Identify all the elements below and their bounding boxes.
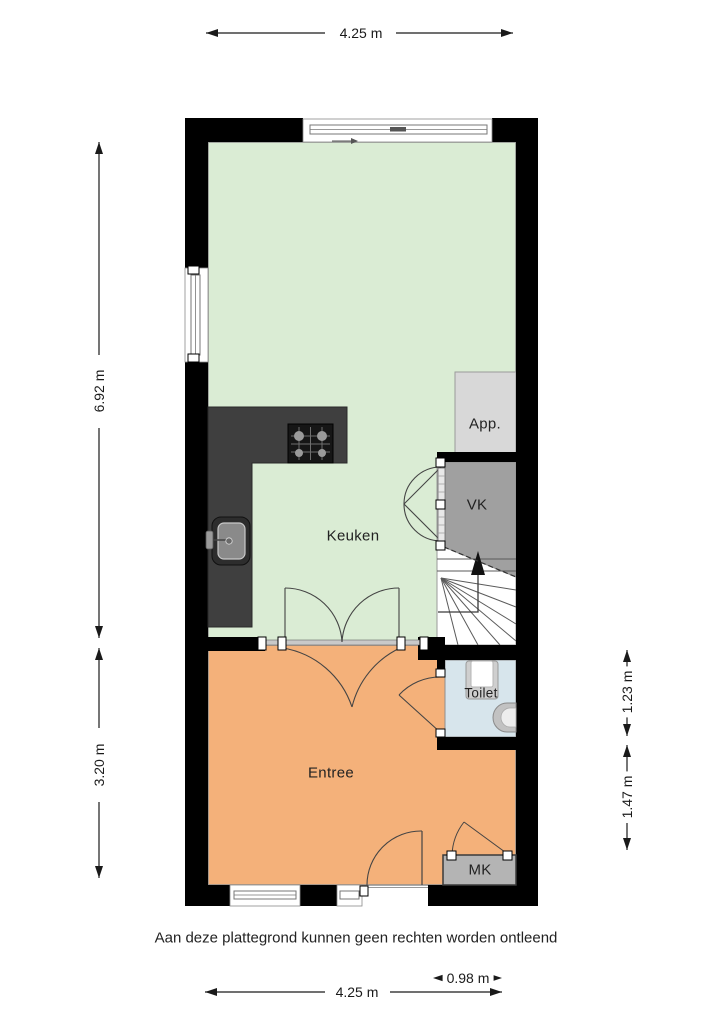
- toilet-fixture: [493, 703, 516, 732]
- window-sidelight: [337, 885, 362, 906]
- window-bottom: [230, 885, 300, 906]
- disclaimer-text: Aan deze plattegrond kunnen geen rechten…: [155, 930, 558, 947]
- wall-keuken-entree: [185, 637, 265, 651]
- room-label-entree: Entree: [308, 765, 354, 782]
- wall-left-upper: [185, 118, 208, 273]
- wall-app-vk: [437, 452, 516, 462]
- room-label-vk: VK: [467, 497, 488, 514]
- wall-bottom-3: [428, 885, 538, 906]
- wall-bottom-1: [185, 885, 230, 906]
- room-label-mk: MK: [468, 862, 491, 879]
- cooktop: [288, 424, 333, 463]
- dimension-bottom-right: 0.98 m: [443, 970, 494, 986]
- wall-left-lower: [185, 358, 208, 906]
- floorplan-page: Keuken Entree Toilet VK App. MK 4.25 m 6…: [0, 0, 724, 1024]
- dimension-right-upper: 1.23 m: [619, 667, 635, 718]
- window-top: [303, 119, 492, 144]
- wall-bottom-2: [300, 885, 337, 906]
- dimension-bottom-width: 4.25 m: [332, 984, 383, 1000]
- dimension-top-width: 4.25 m: [336, 25, 387, 41]
- room-label-keuken: Keuken: [327, 528, 380, 545]
- window-left: [185, 266, 208, 362]
- appliance-box: [455, 372, 516, 453]
- wall-toilet-top: [428, 645, 516, 660]
- dimension-left-upper: 6.92 m: [91, 366, 107, 417]
- dimension-left-lower: 3.20 m: [91, 740, 107, 791]
- floorplan-drawing: [0, 0, 724, 1024]
- room-label-toilet: Toilet: [464, 686, 497, 701]
- dimension-right-lower: 1.47 m: [619, 772, 635, 823]
- kitchen-sink: [206, 517, 250, 565]
- wall-right: [516, 118, 538, 906]
- wall-toilet-bottom: [437, 737, 516, 750]
- room-label-app: App.: [469, 416, 501, 433]
